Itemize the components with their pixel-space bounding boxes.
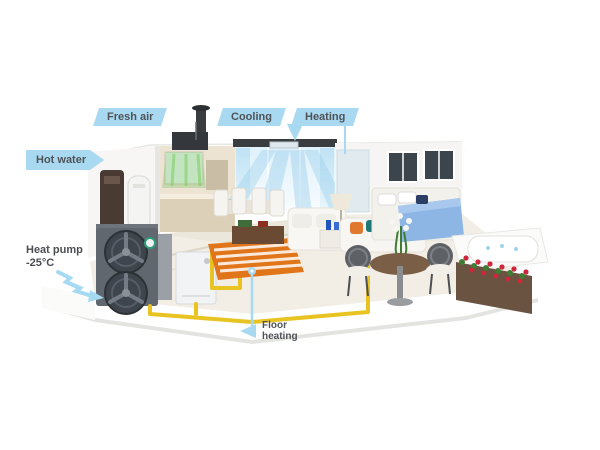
label-cooling-text: Cooling (231, 110, 272, 124)
label-cooling: Cooling (217, 108, 286, 126)
label-hot-water-text: Hot water (36, 154, 86, 166)
label-hot-water: Hot water (26, 150, 104, 170)
label-fresh-air: Fresh air (93, 108, 167, 126)
fan-icon (105, 272, 147, 314)
label-heat-pump-line1: Heat pump (26, 244, 83, 257)
bed (372, 188, 464, 242)
label-floor-heating-line2: heating (262, 331, 298, 342)
house-illustration (0, 0, 600, 450)
scene: Fresh air Cooling Heating Hot water Heat… (0, 0, 600, 450)
label-heat-pump: Heat pump -25°C (26, 244, 83, 270)
fan-icon (105, 231, 147, 273)
label-heat-pump-line2: -25°C (26, 257, 83, 270)
fresh-air-stream (162, 152, 206, 188)
label-heating: Heating (291, 108, 359, 126)
label-heating-text: Heating (305, 110, 345, 124)
label-floor-heating: Floor heating (262, 320, 298, 342)
label-fresh-air-text: Fresh air (107, 110, 153, 124)
floor-heating-arrow-icon (240, 324, 256, 338)
label-floor-heating-line1: Floor (262, 320, 298, 331)
water-tank (128, 176, 150, 230)
range-hood (172, 105, 210, 150)
